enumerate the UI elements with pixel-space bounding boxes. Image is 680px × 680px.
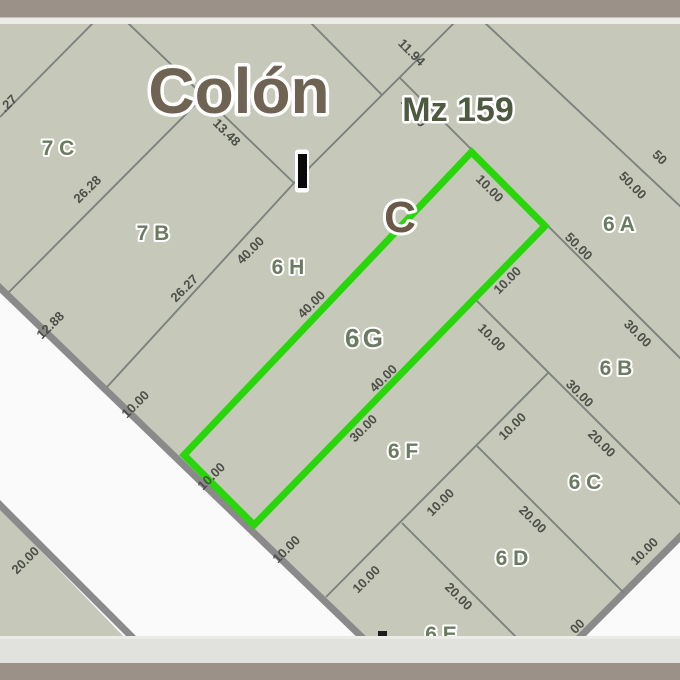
svg-text:6 C: 6 C (569, 471, 602, 494)
svg-text:6 D: 6 D (496, 547, 529, 570)
svg-text:Colón: Colón (148, 55, 329, 127)
svg-text:Mz 159: Mz 159 (402, 91, 514, 129)
svg-text:7 B: 7 B (137, 222, 170, 245)
svg-text:6 H: 6 H (272, 256, 305, 279)
svg-text:6 B: 6 B (600, 357, 633, 380)
svg-text:6 G: 6 G (345, 323, 382, 353)
svg-text:C: C (384, 193, 416, 242)
svg-text:6 F: 6 F (388, 440, 419, 463)
svg-text:6 A: 6 A (603, 213, 635, 236)
svg-text:7 C: 7 C (42, 137, 75, 160)
